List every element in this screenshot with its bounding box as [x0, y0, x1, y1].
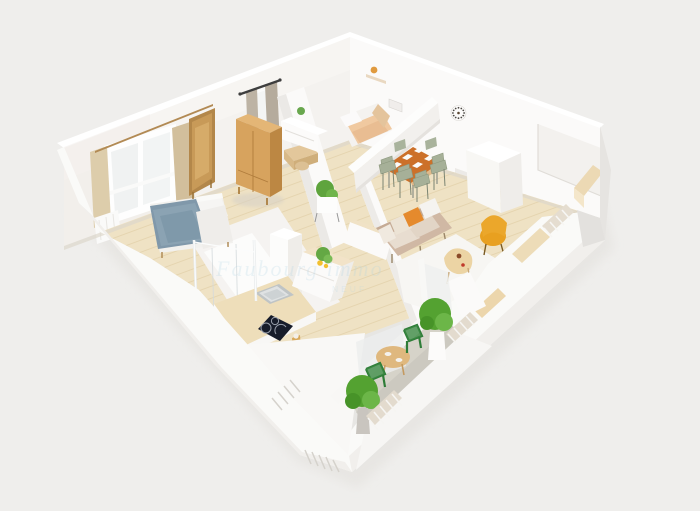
- svg-text:NEUF: NEUF: [332, 284, 367, 294]
- svg-text:Faubourg immo: Faubourg immo: [215, 256, 384, 281]
